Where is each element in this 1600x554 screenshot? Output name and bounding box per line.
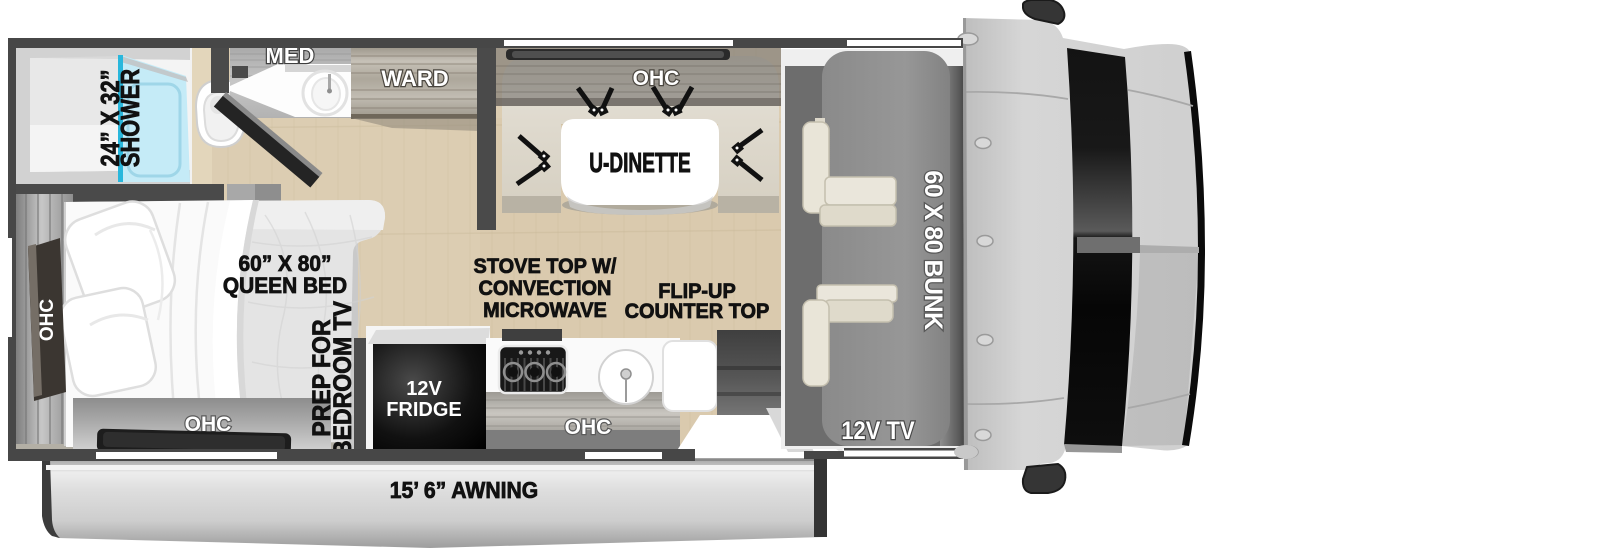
svg-text:OHC: OHC (565, 416, 612, 439)
svg-text:BEDROOM TV: BEDROOM TV (329, 301, 357, 457)
svg-text:COUNTER TOP: COUNTER TOP (625, 300, 770, 324)
svg-text:OHC: OHC (37, 299, 58, 342)
svg-text:U-DINETTE: U-DINETTE (589, 147, 691, 179)
svg-text:12V: 12V (406, 378, 442, 400)
svg-text:FRIDGE: FRIDGE (386, 399, 462, 421)
svg-text:15’ 6” AWNING: 15’ 6” AWNING (390, 477, 538, 503)
svg-text:OHC: OHC (633, 67, 680, 90)
svg-text:STOVE TOP W/: STOVE TOP W/ (474, 255, 617, 279)
svg-text:60” X 80”: 60” X 80” (239, 252, 332, 277)
svg-text:60 X 80 BUNK: 60 X 80 BUNK (919, 170, 947, 330)
svg-text:QUEEN BED: QUEEN BED (223, 274, 347, 299)
svg-text:12V TV: 12V TV (841, 417, 915, 445)
svg-text:WARD: WARD (381, 66, 448, 91)
svg-text:SHOWER: SHOWER (116, 69, 145, 167)
svg-text:MICROWAVE: MICROWAVE (483, 299, 607, 323)
svg-text:CONVECTION: CONVECTION (479, 277, 612, 301)
